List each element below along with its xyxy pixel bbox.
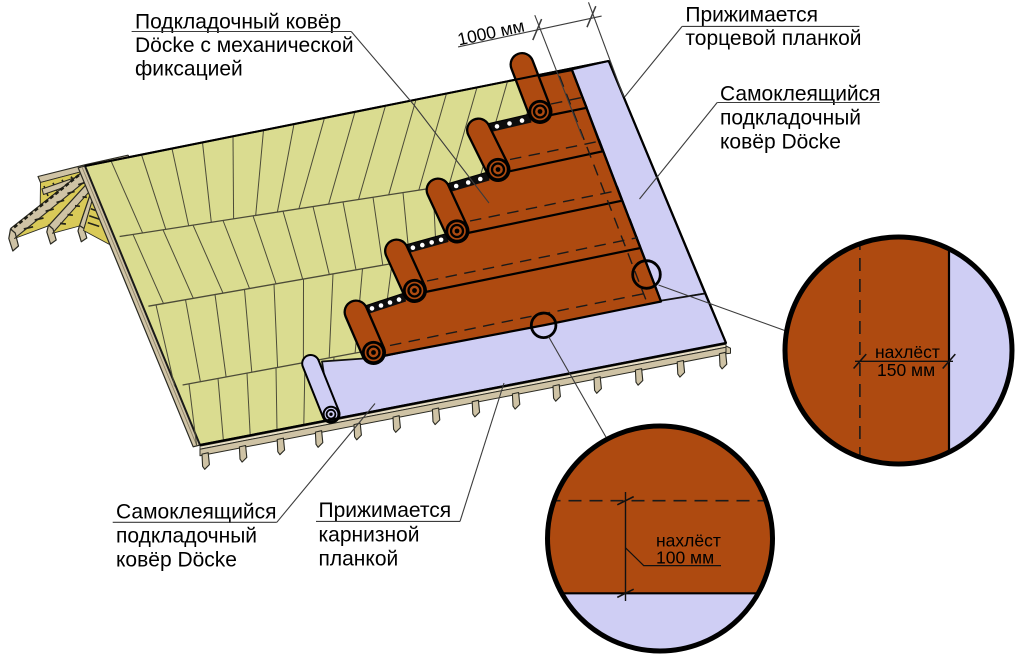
- svg-text:карнизной: карнизной: [319, 524, 420, 547]
- svg-text:подкладочный: подкладочный: [720, 107, 861, 130]
- svg-text:Прижимается: Прижимается: [319, 499, 452, 522]
- svg-text:фиксацией: фиксацией: [135, 58, 243, 81]
- svg-text:торцевой планкой: торцевой планкой: [685, 27, 861, 50]
- svg-text:планкой: планкой: [319, 548, 399, 571]
- svg-text:нахлёст: нахлёст: [875, 342, 940, 362]
- svg-text:подкладочный: подкладочный: [116, 525, 257, 548]
- svg-text:Прижимается: Прижимается: [685, 4, 818, 27]
- svg-text:Подкладочный ковёр: Подкладочный ковёр: [135, 11, 341, 34]
- svg-text:Самоклеящийся: Самоклеящийся: [116, 501, 277, 524]
- svg-text:100 мм: 100 мм: [656, 548, 714, 568]
- svg-text:Döcke с механической: Döcke с механической: [135, 34, 354, 57]
- svg-text:150 мм: 150 мм: [877, 360, 935, 380]
- svg-text:ковёр Döcke: ковёр Döcke: [720, 131, 841, 154]
- svg-text:ковёр Döcke: ковёр Döcke: [116, 549, 237, 572]
